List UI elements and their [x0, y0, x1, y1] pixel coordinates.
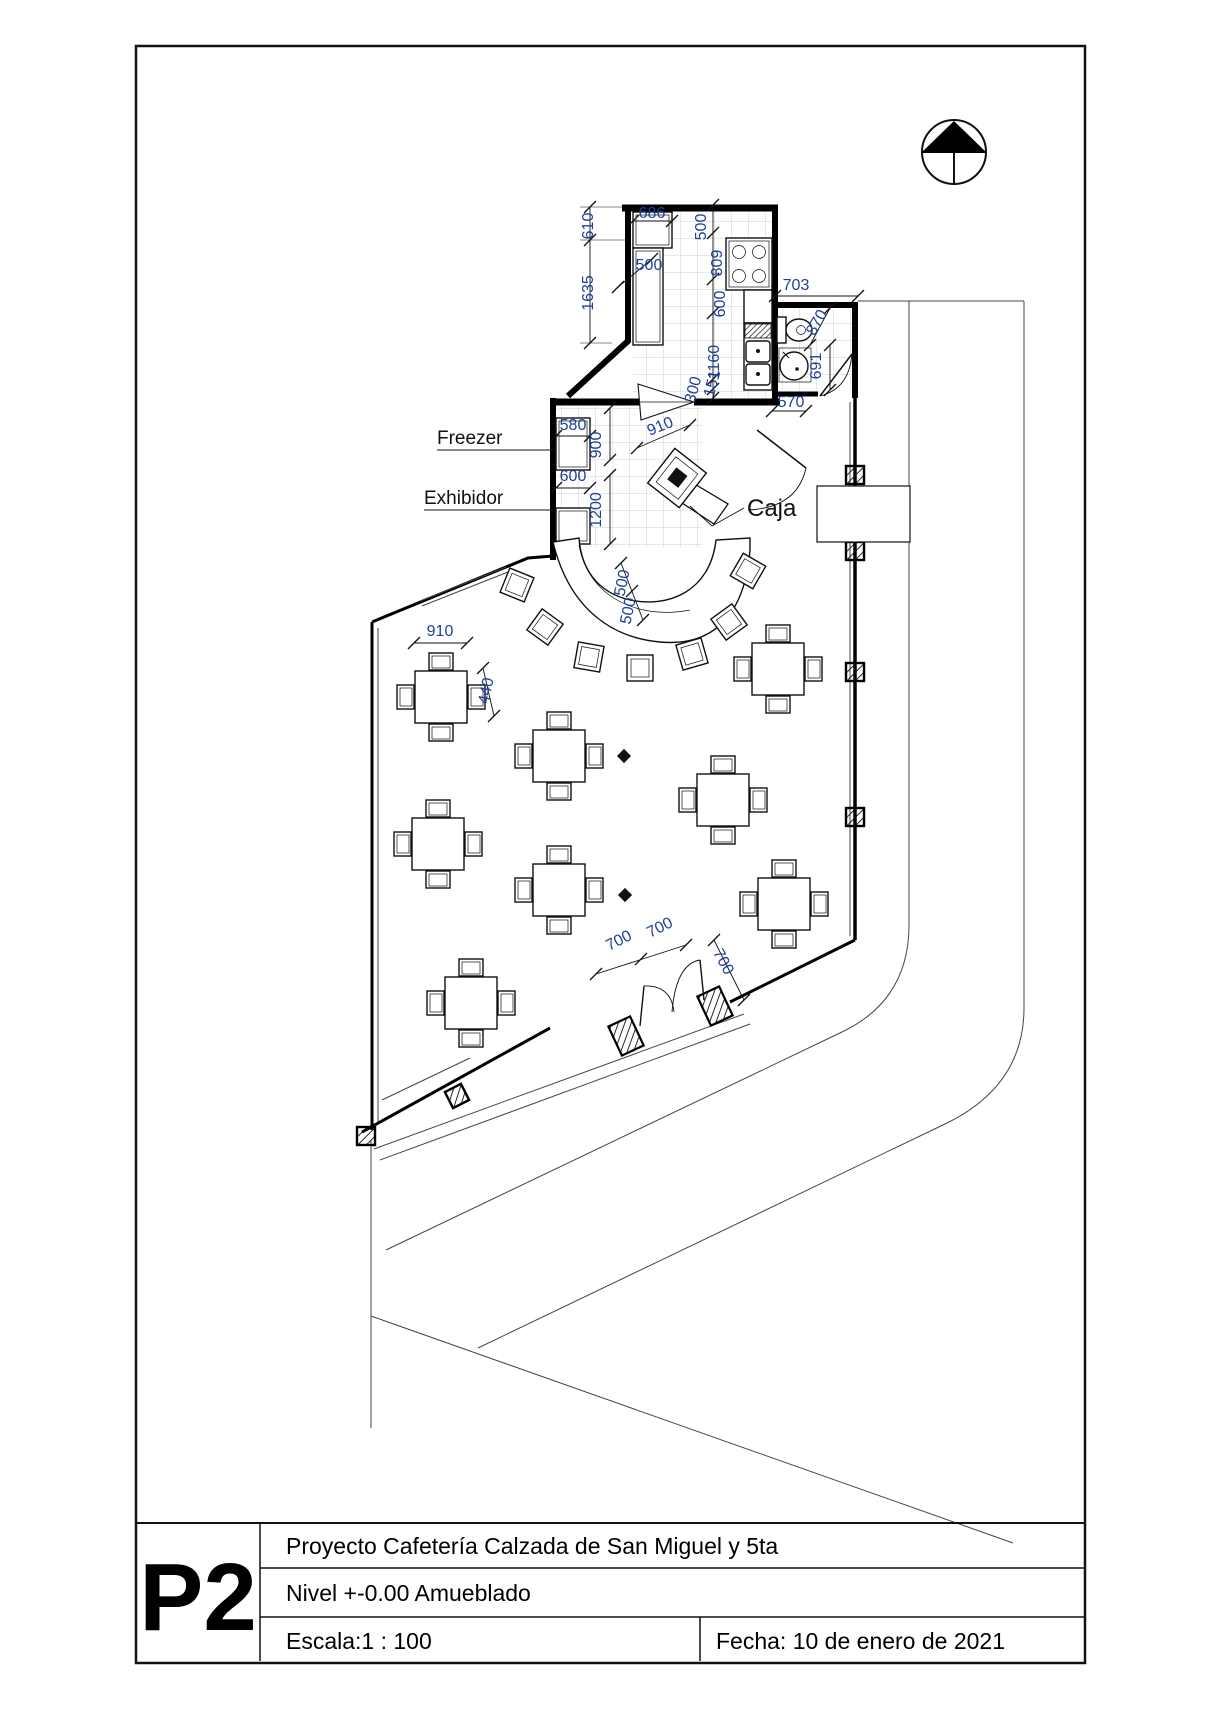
dimension-label: 900	[588, 432, 605, 459]
dimension-label: 686	[639, 205, 666, 222]
exhibidor-label: Exhibidor	[424, 488, 504, 509]
date-text: Fecha: 10 de enero de 2021	[716, 1628, 1005, 1654]
dining-table	[397, 653, 485, 741]
post-column	[618, 888, 632, 902]
planter	[817, 486, 910, 542]
dimension-label: 580	[560, 417, 587, 434]
drawing-sheet: Freezer Exhibidor Caja	[0, 0, 1212, 1718]
structural-column	[846, 542, 864, 560]
dimension-label: 600	[560, 468, 587, 485]
front-right-wall	[730, 940, 855, 1002]
structural-column	[846, 663, 864, 681]
dimension-label: 600	[712, 291, 729, 318]
dimension-label: 610	[580, 213, 597, 240]
dimension-label: 703	[783, 277, 810, 294]
sheet-id: P2	[139, 1544, 256, 1651]
dimension-label: 910	[427, 623, 454, 640]
front-left-wall	[362, 1028, 550, 1132]
dining-table	[515, 846, 603, 934]
dimension-label: 700	[709, 946, 737, 978]
sheet-border	[136, 46, 1085, 1663]
title-block: P2 Proyecto Cafetería Calzada de San Mig…	[136, 1523, 1085, 1661]
level-title: Nivel +-0.00 Amueblado	[286, 1580, 531, 1606]
bar-stool	[574, 642, 604, 672]
bar-stool	[627, 655, 653, 681]
bar-stool	[676, 638, 708, 670]
structural-column	[445, 1084, 469, 1108]
porch-band	[374, 1014, 750, 1160]
scale-text: Escala:1 : 100	[286, 1628, 432, 1654]
dining-table	[515, 712, 603, 800]
dining-table	[734, 625, 822, 713]
freezer-label: Freezer	[437, 428, 503, 449]
dimension-label: 691	[808, 353, 825, 380]
post-column	[617, 749, 631, 763]
dimension-label: 700	[603, 927, 635, 954]
structural-column	[846, 808, 864, 826]
dimension-label: 700	[644, 914, 676, 941]
floor-plan-canvas: Freezer Exhibidor Caja	[0, 0, 1212, 1718]
dining-table	[740, 860, 828, 948]
dimension-label: 570	[778, 394, 805, 411]
stove	[726, 238, 772, 290]
bar-stool	[527, 609, 563, 645]
dining-table	[427, 959, 515, 1047]
dimension-label: 500	[693, 214, 710, 241]
kitchen-left-wall	[568, 205, 628, 396]
corner-column	[357, 1127, 375, 1145]
north-arrow-icon	[921, 120, 987, 184]
dimension-label: 1635	[580, 275, 597, 311]
dimension-label: 1200	[588, 492, 605, 528]
dining-table	[679, 756, 767, 844]
dimension-label: 440	[476, 676, 498, 706]
caja-label: Caja	[747, 495, 797, 522]
structural-column	[846, 466, 864, 484]
dimension-label: 500	[636, 257, 663, 274]
project-title: Proyecto Cafetería Calzada de San Miguel…	[286, 1533, 778, 1559]
kitchen-counter	[744, 290, 772, 323]
dimension-label: 809	[709, 250, 726, 277]
dining-table	[394, 800, 482, 888]
kitchen-sink	[744, 323, 772, 390]
